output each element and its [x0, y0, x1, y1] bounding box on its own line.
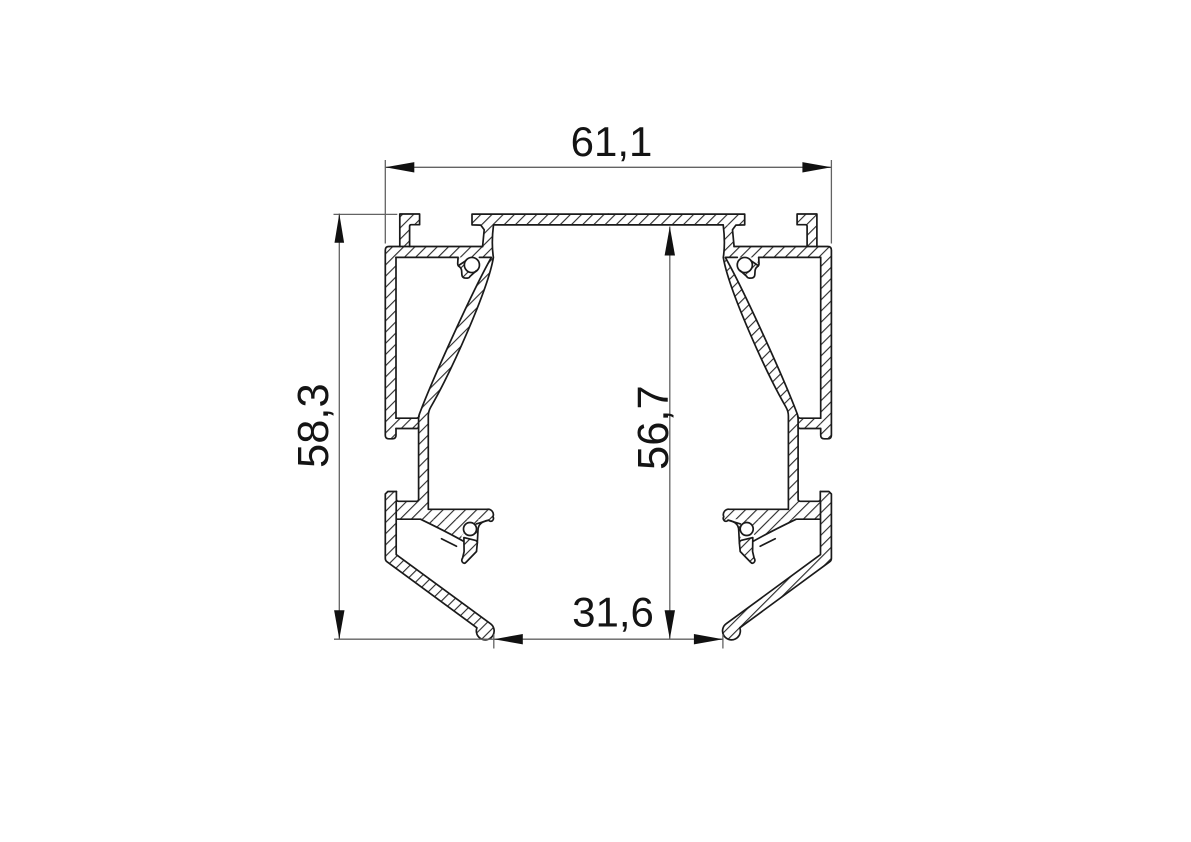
svg-text:31,6: 31,6	[572, 589, 654, 636]
svg-text:58,3: 58,3	[290, 383, 338, 468]
svg-text:61,1: 61,1	[571, 118, 653, 165]
svg-text:56,7: 56,7	[630, 385, 678, 470]
